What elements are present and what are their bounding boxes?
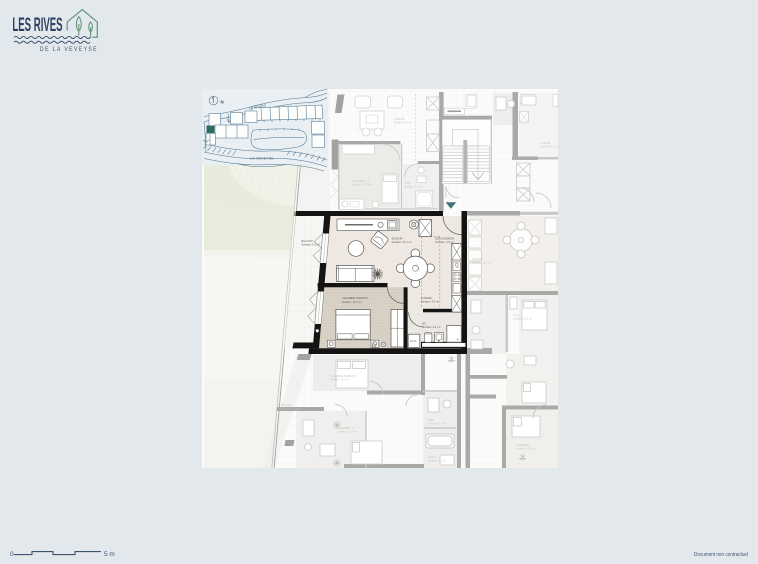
svg-text:N: N	[221, 100, 224, 105]
svg-text:ML/SL: ML/SL	[410, 340, 418, 343]
svg-text:WC/LT: WC/LT	[428, 455, 436, 459]
svg-text:SDB: SDB	[405, 181, 411, 185]
svg-text:Surface: 3.9 m²: Surface: 3.9 m²	[435, 240, 453, 244]
svg-text:CHAMBRE 1.2: CHAMBRE 1.2	[352, 179, 370, 183]
svg-text:Surface: 7.2 m²: Surface: 7.2 m²	[281, 406, 299, 410]
svg-text:0: 0	[10, 551, 14, 558]
svg-text:BALCON: BALCON	[281, 403, 292, 407]
svg-text:CH. 2: CH. 2	[513, 313, 520, 317]
svg-text:CUISINE: CUISINE	[421, 296, 432, 300]
svg-text:CHAMBRE 2: CHAMBRE 2	[338, 426, 354, 430]
svg-text:BALCON: BALCON	[302, 239, 313, 243]
svg-text:Surface: 15.1 m²: Surface: 15.1 m²	[342, 300, 362, 304]
svg-text:LA VEVEYSE: LA VEVEYSE	[250, 157, 274, 161]
svg-text:Surface: 5.1 m²: Surface: 5.1 m²	[428, 421, 446, 425]
svg-text:Surface: 4.2 m²: Surface: 4.2 m²	[405, 184, 423, 188]
svg-text:Surface: 12.2 m²: Surface: 12.2 m²	[516, 446, 535, 450]
svg-text:Surface: 26.8 m²: Surface: 26.8 m²	[472, 260, 491, 264]
svg-text:LES RIVES: LES RIVES	[12, 14, 62, 36]
svg-text:CHAMBRE PARENTS: CHAMBRE PARENTS	[342, 296, 369, 300]
svg-text:SDB: SDB	[428, 418, 434, 422]
svg-text:Surface: 31.4 m²: Surface: 31.4 m²	[392, 240, 412, 244]
svg-text:CHAMBRE: CHAMBRE	[516, 443, 529, 447]
svg-text:CUISINE: CUISINE	[540, 141, 551, 145]
svg-text:Surface: 12.8 m²: Surface: 12.8 m²	[352, 182, 371, 186]
svg-text:DE LA VEVEYSE: DE LA VEVEYSE	[40, 46, 98, 53]
svg-text:Surface: 12.6 m²: Surface: 12.6 m²	[338, 429, 357, 433]
svg-text:Surface: 3.4 m²: Surface: 3.4 m²	[422, 325, 440, 329]
svg-text:Surface: 14.9 m²: Surface: 14.9 m²	[330, 377, 349, 381]
svg-text:CHAMBRE PARENTS: CHAMBRE PARENTS	[330, 374, 356, 378]
svg-text:Surface: 6.1 m²: Surface: 6.1 m²	[540, 144, 558, 148]
svg-text:5 m: 5 m	[104, 551, 115, 558]
svg-text:Surface: 4.5 m²: Surface: 4.5 m²	[421, 299, 439, 303]
svg-text:Surface: 5.4 m²: Surface: 5.4 m²	[394, 120, 412, 124]
svg-text:Document non contractuel: Document non contractuel	[694, 552, 748, 558]
svg-text:WC: WC	[422, 322, 427, 326]
svg-text:Surface: 11.2 m²: Surface: 11.2 m²	[513, 316, 532, 320]
svg-text:CUISINE: CUISINE	[394, 117, 405, 121]
svg-text:Surface: 6.3 m²: Surface: 6.3 m²	[302, 242, 320, 246]
svg-text:Surface: 2.1 m²: Surface: 2.1 m²	[428, 458, 446, 462]
